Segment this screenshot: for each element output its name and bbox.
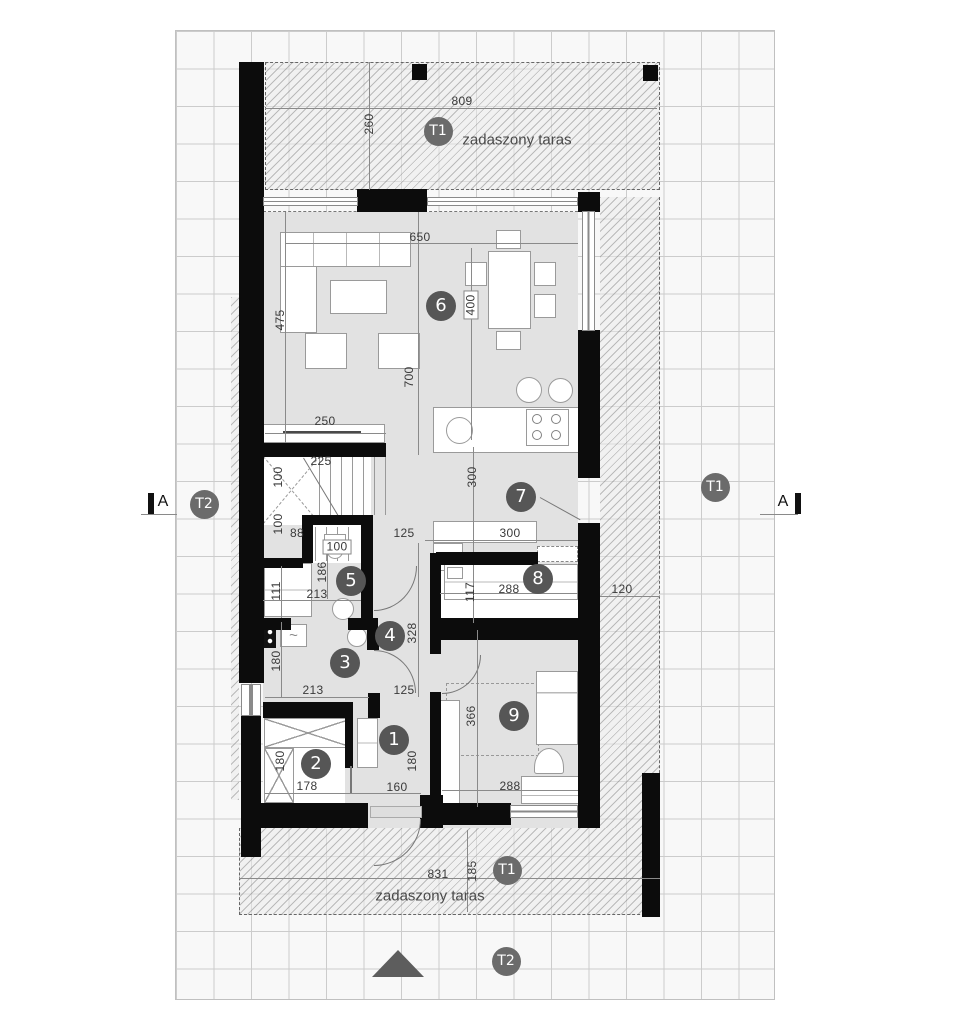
dim-label: 475 (273, 310, 287, 331)
wall-room5-3-left (263, 618, 291, 630)
section-bar-right (795, 493, 801, 514)
window (263, 197, 358, 206)
room-badge-6: 6 (426, 291, 456, 321)
room-badge-7: 7 (506, 482, 536, 512)
armchair (305, 333, 347, 369)
dim-label: 88 (290, 526, 304, 540)
section-bar-left (148, 493, 154, 514)
wall-room3-right-lower (368, 693, 380, 718)
dining-chair (534, 294, 556, 318)
pantry-box (447, 567, 463, 579)
floor-plan-canvas: ~ (0, 0, 968, 1024)
pass-through (537, 546, 578, 562)
stove-burner-icon (532, 430, 542, 440)
hall-cabinet (357, 718, 378, 768)
terrace-label-top: zadaszony taras (462, 132, 571, 149)
t1-marker-top: T1 (424, 117, 453, 146)
dim-label: 400 (464, 291, 479, 320)
door-leaf-sliding (350, 766, 352, 794)
dim-label: 250 (315, 414, 336, 428)
dining-chair (465, 262, 487, 286)
armchair (378, 333, 420, 369)
wall-room5-top (263, 558, 303, 568)
dim-line (425, 540, 578, 541)
wall-room9-left-top (430, 640, 441, 654)
wall-room5-3-right (348, 618, 378, 630)
coffee-table (330, 280, 387, 314)
dim-label: 117 (463, 582, 477, 602)
garden-wall-bar (642, 773, 660, 917)
stove-burner-icon (551, 414, 561, 424)
sink-icon (446, 417, 473, 444)
dim-line (265, 433, 386, 434)
bar-stool (516, 377, 542, 403)
dim-line (600, 596, 660, 597)
dim-label: 180 (405, 751, 419, 772)
window (582, 211, 595, 331)
dim-label: 160 (387, 780, 408, 794)
wall-top-right-corner (578, 192, 600, 212)
room-badge-5: 5 (336, 566, 366, 596)
dim-label: 180 (269, 651, 283, 672)
dim-label: 225 (311, 454, 332, 468)
room-badge-4: 4 (375, 621, 405, 651)
dim-label: 185 (465, 861, 479, 882)
dim-label: 300 (465, 467, 479, 488)
wall-right-lower (578, 523, 600, 828)
terrace-column (412, 64, 427, 80)
dim-line (239, 878, 660, 879)
dim-label: 125 (394, 526, 415, 540)
wall-room8-9 (430, 618, 580, 640)
wall-room2-top (263, 702, 353, 718)
dining-chair (496, 230, 521, 249)
washbasin-icon (332, 598, 354, 620)
entrance-threshold (370, 806, 422, 818)
room-badge-9: 9 (499, 701, 529, 731)
dim-line (418, 543, 419, 697)
t1-marker-right: T1 (701, 473, 730, 502)
wall-left-lower (241, 716, 261, 857)
dining-chair (534, 262, 556, 286)
wall-room9-left (430, 692, 441, 810)
dim-label: 120 (612, 582, 633, 596)
dim-label: 100 (323, 540, 352, 555)
room-badge-1: 1 (379, 725, 409, 755)
terrace-label-bottom: zadaszony taras (375, 888, 484, 905)
t2-marker-bottom: T2 (492, 947, 521, 976)
dining-table (488, 251, 531, 329)
left-hatch-strip (231, 297, 239, 800)
dim-label: 186 (315, 562, 329, 583)
terrace-column (643, 65, 658, 81)
dim-label: 288 (500, 779, 521, 793)
sofa (280, 232, 411, 267)
dim-line (265, 108, 657, 109)
room-badge-2: 2 (301, 749, 331, 779)
dim-label: 700 (402, 367, 416, 388)
t2-marker-left: T2 (190, 490, 219, 519)
bed (536, 671, 578, 745)
wall-kitchen-pantry (436, 552, 538, 565)
dim-label: 260 (362, 114, 376, 135)
window (241, 684, 261, 716)
window (427, 197, 578, 206)
dim-line (285, 243, 578, 244)
window (510, 805, 578, 818)
bar-stool (548, 378, 573, 403)
wall-stair-niche-right (361, 525, 373, 563)
wall-left-main (239, 62, 264, 683)
north-arrow-icon (372, 950, 424, 977)
terrace-top (265, 62, 660, 190)
dim-label: 300 (500, 526, 521, 540)
dim-label: 125 (394, 683, 415, 697)
wall-stair-niche-top (313, 515, 373, 525)
section-marker-a-right: A (778, 493, 789, 511)
stove-burner-icon (532, 414, 542, 424)
section-line-right (760, 514, 798, 515)
wall-top-mid (357, 189, 427, 212)
dim-label: 213 (307, 587, 328, 601)
terrace-side-strip (600, 197, 660, 828)
dining-chair (496, 331, 521, 350)
dim-label: 831 (428, 867, 449, 881)
dim-label: 178 (297, 779, 318, 793)
dim-label: 100 (271, 514, 285, 535)
dim-label: 366 (464, 706, 478, 727)
dim-line (473, 447, 474, 552)
t1-marker-bottom: T1 (493, 856, 522, 885)
dim-line (418, 212, 419, 455)
dim-label: 650 (410, 230, 431, 244)
dim-label: 111 (269, 581, 283, 600)
dim-label: 809 (452, 94, 473, 108)
stove-icon (526, 409, 569, 446)
dim-line (471, 248, 472, 440)
dim-label: 100 (271, 467, 285, 488)
section-marker-a-left: A (158, 493, 169, 511)
dim-label: 213 (303, 683, 324, 697)
section-line-left (141, 514, 177, 515)
washbasin-icon (347, 627, 367, 647)
wall-bottom-left (261, 803, 368, 828)
wall-right-upper (578, 330, 600, 478)
room-badge-8: 8 (523, 564, 553, 594)
dim-line (265, 697, 369, 698)
wall-room1-2-divider (345, 712, 353, 768)
dim-label: 180 (273, 751, 287, 772)
dim-label: 288 (499, 582, 520, 596)
dim-label: 328 (405, 623, 419, 644)
stove-burner-icon (551, 430, 561, 440)
wardrobe-room2 (264, 718, 352, 748)
room-badge-3: 3 (330, 648, 360, 678)
